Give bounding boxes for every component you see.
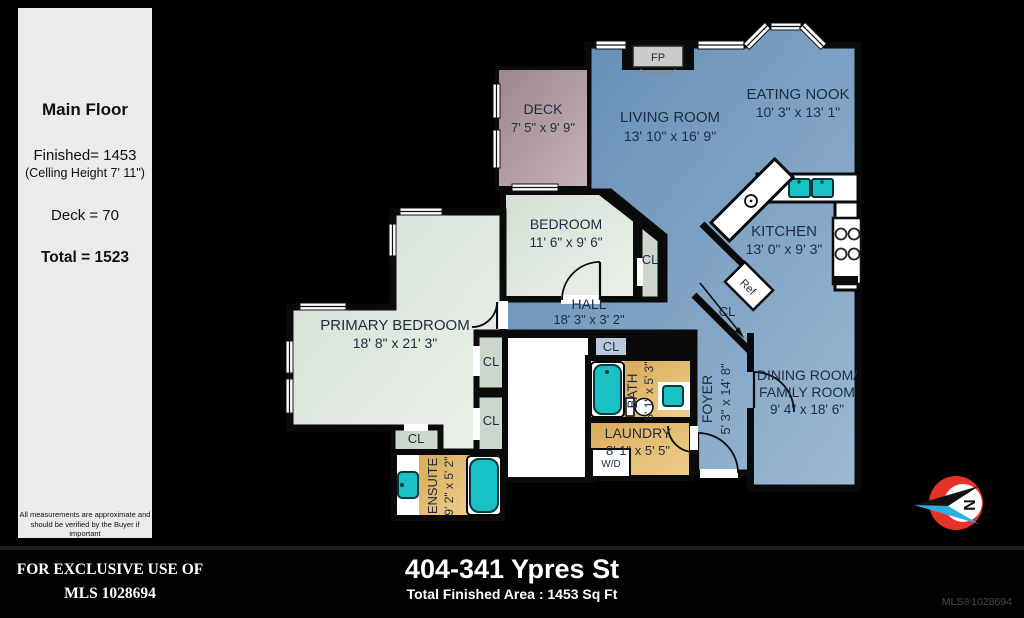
closet-label: CL bbox=[483, 354, 500, 369]
sink-icon bbox=[663, 386, 683, 406]
fireplace-label: FP bbox=[651, 52, 665, 64]
floorplan-page: Main Floor Finished= 1453 (Celling Heigh… bbox=[0, 0, 1024, 618]
prep-sink-icon bbox=[750, 200, 753, 203]
room-dims-deck: 7' 5" x 9' 9" bbox=[511, 120, 575, 135]
north-indicator: N bbox=[960, 499, 977, 511]
closet-label: CL bbox=[642, 252, 659, 267]
room-dims-bedroom: 11' 6" x 9' 6" bbox=[529, 235, 602, 250]
closet-opening bbox=[473, 408, 480, 440]
room-dims-nook: 10' 3" x 13' 1" bbox=[756, 104, 841, 120]
room-dims-laundry: 8' 1" x 5' 5" bbox=[606, 443, 670, 458]
closet-label: CL bbox=[483, 413, 500, 428]
room-label-laundry: LAUNDRY bbox=[605, 425, 672, 441]
door-opening bbox=[700, 469, 738, 478]
room-dims-hall: 18' 3" x 3' 2" bbox=[553, 312, 625, 327]
mls-watermark: MLS®1028694 bbox=[942, 596, 1012, 608]
room-label-deck: DECK bbox=[524, 101, 564, 117]
floor-plan-svg: Ref bbox=[0, 0, 1024, 618]
closet-label: CL bbox=[408, 431, 425, 446]
room-dims-primary: 18' 8" x 21' 3" bbox=[353, 335, 438, 351]
property-address: 404-341 Ypres St bbox=[312, 554, 712, 585]
compass-icon: N bbox=[914, 476, 983, 530]
wall-segment bbox=[832, 276, 858, 285]
address-block: 404-341 Ypres St Total Finished Area : 1… bbox=[312, 550, 712, 602]
room-label-bedroom: BEDROOM bbox=[530, 216, 602, 232]
footer-bar: FOR EXCLUSIVE USE OF MLS 1028694 404-341… bbox=[0, 546, 1024, 618]
wall-segment bbox=[747, 333, 754, 372]
room-label-primary: PRIMARY BEDROOM bbox=[320, 317, 469, 334]
room-dims-kitchen: 13' 0" x 9' 3" bbox=[746, 241, 823, 257]
faucet-icon bbox=[820, 180, 823, 183]
closet-opening bbox=[473, 346, 480, 376]
wall-segment bbox=[747, 408, 754, 490]
shower-tub-icon bbox=[470, 459, 498, 512]
room-label-dining-2: FAMILY ROOM bbox=[759, 384, 855, 400]
closet-label: CL bbox=[719, 304, 736, 319]
room-dims-living: 13' 10" x 16' 9" bbox=[624, 128, 716, 144]
room-label-ensuite: ENSUITE bbox=[425, 458, 440, 515]
washer-dryer-label: W/D bbox=[601, 459, 620, 470]
room-label-living: LIVING ROOM bbox=[620, 109, 720, 126]
void-area bbox=[505, 335, 591, 480]
room-label-nook: EATING NOOK bbox=[746, 86, 849, 103]
exclusive-use-block: FOR EXCLUSIVE USE OF MLS 1028694 bbox=[10, 558, 210, 606]
closet-label: CL bbox=[603, 339, 620, 354]
room-label-hall: HALL bbox=[571, 296, 606, 312]
room-dims-dining: 9' 4" x 18' 6" bbox=[770, 402, 844, 417]
faucet-icon bbox=[605, 370, 609, 374]
room-label-bath: BATH bbox=[625, 373, 640, 408]
closet-opening bbox=[404, 424, 428, 431]
room-dims-bath: 8' 1" x 5' 3" bbox=[642, 361, 656, 420]
room-label-foyer: FOYER bbox=[699, 375, 715, 423]
room-dims-ensuite: 9' 2" x 5' 2" bbox=[442, 456, 456, 515]
faucet-icon bbox=[797, 180, 800, 183]
door-opening bbox=[690, 426, 698, 450]
room-label-dining-1: DINING ROOM/ bbox=[757, 367, 857, 383]
room-dims-foyer: 5' 3" x 14' 8" bbox=[718, 363, 733, 435]
total-area-text: Total Finished Area : 1453 Sq Ft bbox=[312, 586, 712, 602]
faucet-icon bbox=[400, 483, 404, 487]
exclusive-use-line-1: FOR EXCLUSIVE USE OF bbox=[10, 558, 210, 582]
wall-segment bbox=[628, 333, 692, 358]
exclusive-use-line-2: MLS 1028694 bbox=[10, 582, 210, 606]
room-label-kitchen: KITCHEN bbox=[751, 223, 817, 240]
